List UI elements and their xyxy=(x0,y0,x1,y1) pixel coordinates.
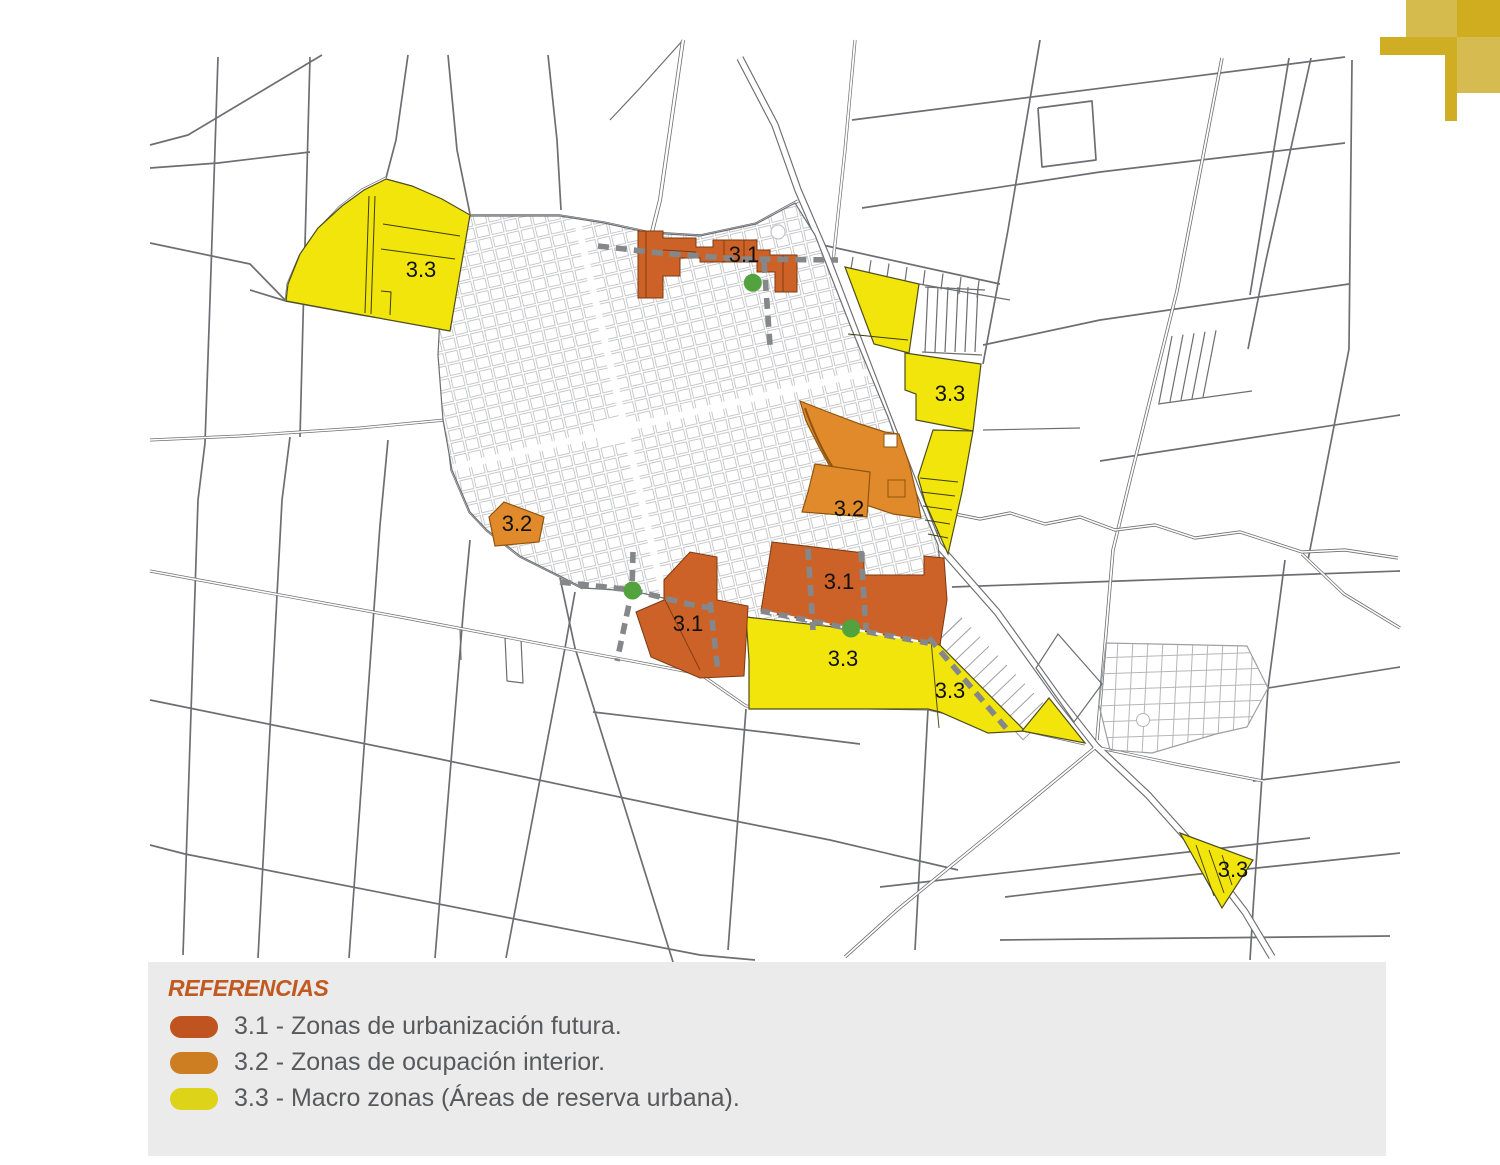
svg-text:3.1: 3.1 xyxy=(824,569,855,594)
svg-text:3.3: 3.3 xyxy=(1218,857,1249,882)
svg-text:3.1 - Zonas de urbanización fu: 3.1 - Zonas de urbanización futura. xyxy=(234,1012,622,1040)
svg-text:3.1: 3.1 xyxy=(729,242,760,267)
svg-text:3.2: 3.2 xyxy=(502,511,533,536)
svg-text:3.3 - Macro zonas (Áreas de re: 3.3 - Macro zonas (Áreas de reserva urba… xyxy=(234,1083,740,1112)
svg-text:3.1: 3.1 xyxy=(673,611,704,636)
svg-text:3.2: 3.2 xyxy=(834,496,865,521)
svg-text:3.3: 3.3 xyxy=(935,678,966,703)
svg-text:3.3: 3.3 xyxy=(935,381,966,406)
svg-text:3.2 - Zonas de ocupación inter: 3.2 - Zonas de ocupación interior. xyxy=(234,1048,605,1076)
svg-text:REFERENCIAS: REFERENCIAS xyxy=(168,975,330,1001)
svg-text:3.3: 3.3 xyxy=(828,646,859,671)
svg-text:3.3: 3.3 xyxy=(406,257,437,282)
